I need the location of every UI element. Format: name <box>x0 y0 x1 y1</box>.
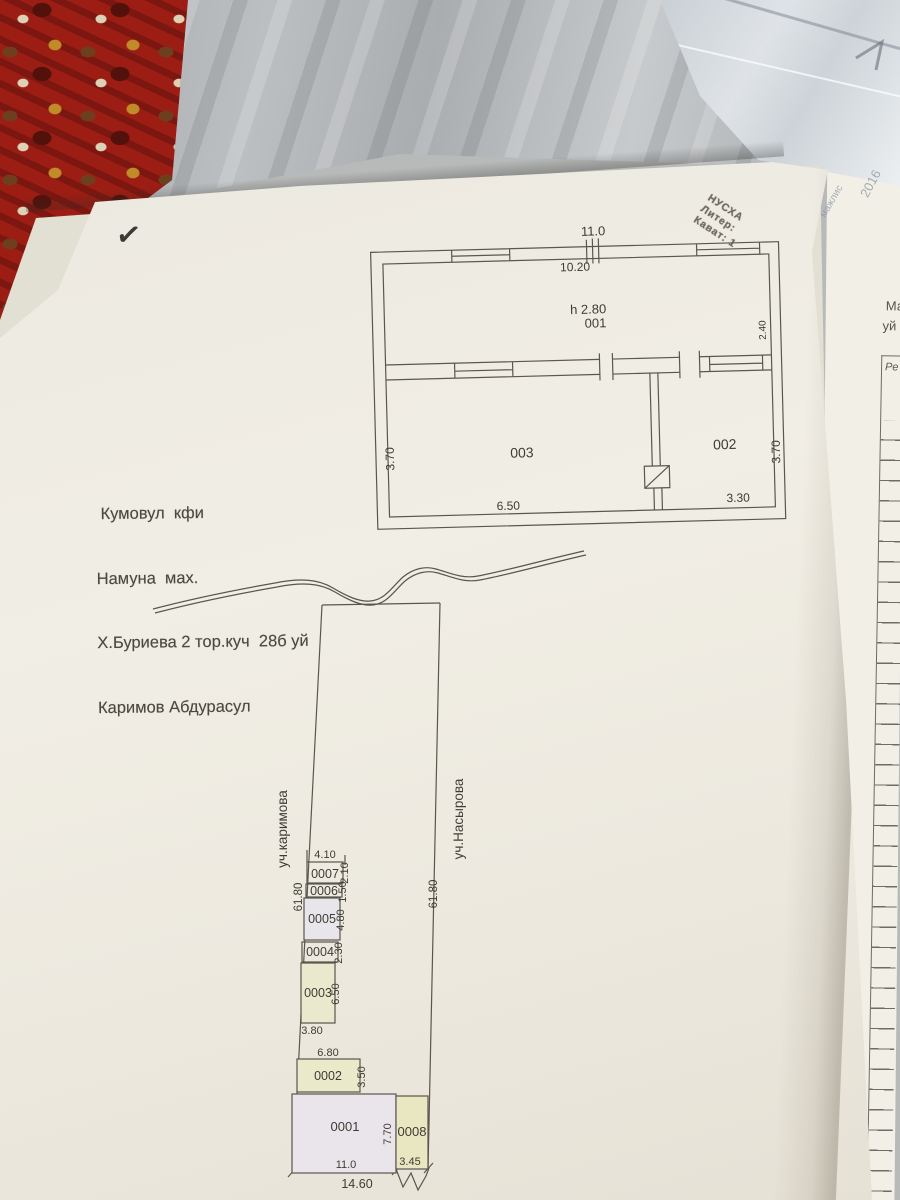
plot-0003-label: 0003 <box>304 986 332 1000</box>
dim-4.80: 4.80 <box>335 909 347 930</box>
dim-2.10: 2.10 <box>339 862 351 883</box>
dim-11.0: 11.0 <box>581 223 606 239</box>
dim-3.70-left: 3.70 <box>383 447 398 471</box>
dim-1.50: 1.50 <box>337 881 349 902</box>
room-001-label: 001 <box>584 315 606 331</box>
dim-7.70: 7.70 <box>382 1123 394 1144</box>
plot-0002-label: 0002 <box>314 1069 342 1083</box>
room-002-label: 002 <box>713 436 737 453</box>
dim-3.70-right: 3.70 <box>769 440 784 464</box>
plot-0007-label: 0007 <box>311 867 339 881</box>
plot-0005-label: 0005 <box>308 912 336 926</box>
address-line: Кумовул кфи <box>96 502 308 526</box>
floor-plan-labels: 11.0 10.20 h 2.80 001 003 002 6.50 3.30 … <box>377 219 784 516</box>
plot-0006-label: 0006 <box>310 884 338 898</box>
dim-10.20: 10.20 <box>560 260 591 275</box>
dim-6.50: 6.50 <box>496 499 520 514</box>
dim-14.60: 14.60 <box>341 1177 372 1191</box>
under-page-text: Ма <box>886 298 900 313</box>
dim-3.30: 3.30 <box>726 491 750 506</box>
photo-root: Ма уй Ре 2016 мажлис Тар ✓ НУСХА Литер: … <box>0 0 900 1200</box>
dim-3.80: 3.80 <box>301 1025 322 1037</box>
floor-plan: 11.0 10.20 h 2.80 001 003 002 6.50 3.30 … <box>358 216 796 542</box>
dim-11.0-bottom: 11.0 <box>336 1159 357 1171</box>
dim-3.45: 3.45 <box>399 1156 420 1168</box>
under-page-table: Ре <box>867 355 900 1200</box>
plot-0001-label: 0001 <box>331 1119 360 1134</box>
site-plan: 0007 0006 0005 0004 0003 0002 0001 0008 … <box>140 545 610 1200</box>
table-header: Ре <box>885 361 899 373</box>
plot-0008-label: 0008 <box>398 1124 427 1139</box>
dim-61.80-right: 61.80 <box>428 880 440 909</box>
dim-4.10: 4.10 <box>314 849 335 861</box>
handwritten-checkmark: ✓ <box>114 216 144 254</box>
floor-plan-walls <box>370 234 785 530</box>
table-rows <box>868 420 900 1200</box>
dim-3.50: 3.50 <box>356 1066 368 1087</box>
street-nasyrova-label: уч.Насырова <box>451 778 466 859</box>
dim-61.80-left: 61.80 <box>293 883 305 912</box>
room-003-label: 003 <box>510 444 534 461</box>
dim-right-001: 2.40 <box>758 320 770 340</box>
dim-2.30: 2.30 <box>333 942 345 963</box>
dim-6.50-strip: 6.50 <box>330 983 342 1004</box>
street-karimova-label: уч.каримова <box>275 790 290 868</box>
dim-6.80: 6.80 <box>317 1047 338 1059</box>
plot-0004-label: 0004 <box>306 945 334 959</box>
under-page-text: уй <box>883 318 897 333</box>
pen-mark <box>842 28 900 88</box>
